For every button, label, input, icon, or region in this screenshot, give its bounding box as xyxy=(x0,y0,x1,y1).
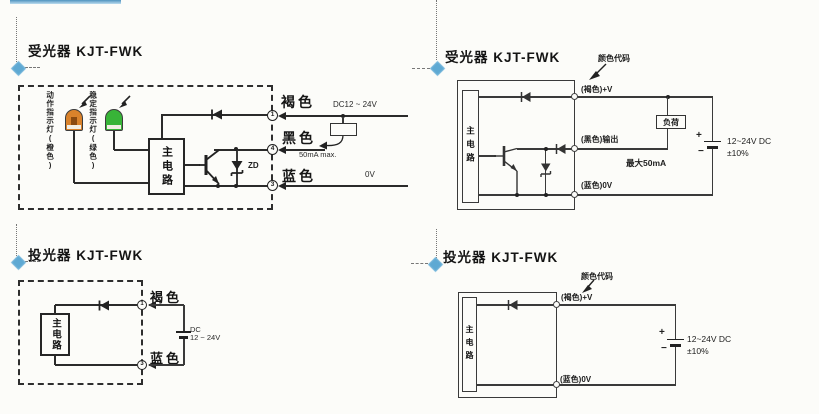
color-code-arrow-icon xyxy=(585,62,609,82)
load-box xyxy=(330,123,357,136)
main-circuit-box: 主电路 xyxy=(462,297,477,392)
pointer-arrow-icon xyxy=(77,95,92,110)
main-circuit-label: 主电路 xyxy=(159,146,175,188)
main-circuit-label: 主电路 xyxy=(48,318,62,351)
wire xyxy=(73,131,75,183)
panel4-title: 投光器 KJT-FWK xyxy=(443,246,558,266)
junction-dot xyxy=(234,184,238,188)
max-current-label: 最大50mA xyxy=(626,157,666,169)
wire xyxy=(55,364,137,366)
junction-dot xyxy=(515,193,519,197)
wire xyxy=(712,97,713,141)
supply-voltage-label: 12~24V DC xyxy=(687,334,731,344)
wire xyxy=(479,96,713,97)
brown-plus-v-label: (褐色)+V xyxy=(581,84,612,95)
battery-plus-sign: + xyxy=(696,130,702,141)
zener-diode-icon xyxy=(539,162,553,178)
operation-indicator-lamp-orange xyxy=(65,109,83,131)
main-circuit-box: 主电路 xyxy=(462,90,479,203)
lamp-base xyxy=(67,125,81,129)
zener-diode-icon xyxy=(229,159,245,177)
registration-dashes xyxy=(25,67,40,68)
panel1-operation-lamp-label: 动作指示灯(橙色) xyxy=(45,91,54,187)
wire xyxy=(667,129,668,149)
panel3-sensor-outline xyxy=(18,280,143,385)
wire xyxy=(149,304,184,306)
junction-dot xyxy=(544,193,548,197)
registration-dotted-line xyxy=(436,229,437,258)
wire xyxy=(74,182,148,184)
wire xyxy=(185,185,268,187)
wire xyxy=(113,131,115,150)
battery-long-plate xyxy=(667,339,684,341)
registration-dotted-line xyxy=(436,0,437,60)
registration-diamond-icon xyxy=(11,255,27,271)
terminal-open xyxy=(571,191,578,198)
registration-dotted-line xyxy=(16,17,17,62)
wire xyxy=(675,305,676,339)
main-circuit-label: 主电路 xyxy=(465,126,477,167)
supply-voltage-label: 12 ~ 24V xyxy=(190,333,220,342)
wire xyxy=(667,97,668,115)
registration-dashes xyxy=(411,263,428,264)
diode-icon xyxy=(552,143,568,155)
junction-dot xyxy=(234,147,238,151)
transistor-icon xyxy=(199,146,223,188)
brown-plus-v-label: (褐色)+V xyxy=(561,292,592,303)
supply-voltage-label: 12~24V DC xyxy=(727,136,771,146)
registration-dotted-line xyxy=(16,224,17,256)
black-wire-label: 黑色 xyxy=(282,128,316,148)
brown-wire-label: 褐色 xyxy=(281,92,315,112)
supply-tolerance-label: ±10% xyxy=(727,148,749,158)
current-rating-label: 50mA max. xyxy=(299,150,337,159)
terminal-1: 1 xyxy=(267,110,278,121)
junction-dot xyxy=(216,184,220,188)
lamp-base xyxy=(107,125,121,129)
panel3-title: 投光器 KJT-FWK xyxy=(28,244,143,264)
supply-tolerance-label: ±10% xyxy=(687,346,709,356)
battery-minus-sign: − xyxy=(661,343,667,354)
stability-indicator-lamp-green xyxy=(105,109,123,131)
black-output-label: (黑色)输出 xyxy=(581,134,618,145)
registration-diamond-icon xyxy=(428,257,444,273)
blue-zero-v-label: (蓝色)0V xyxy=(581,180,612,191)
zener-label: ZD xyxy=(248,161,259,170)
terminal-open xyxy=(553,301,560,308)
registration-dashes xyxy=(412,68,430,69)
diode-icon xyxy=(207,108,225,121)
junction-dot xyxy=(544,147,548,151)
transistor-icon xyxy=(494,141,520,197)
wire xyxy=(161,115,163,138)
load-label: 负荷 xyxy=(663,117,679,128)
wire xyxy=(712,149,713,195)
terminal-3: 3 xyxy=(137,360,147,370)
terminal-1: 1 xyxy=(137,300,147,310)
wire xyxy=(183,305,185,331)
load-box: 负荷 xyxy=(656,115,686,129)
wire xyxy=(675,347,676,385)
panel2-title: 受光器 KJT-FWK xyxy=(445,46,560,66)
terminal-open xyxy=(571,145,578,152)
pointer-arrow-icon xyxy=(117,95,132,110)
diode-icon xyxy=(504,299,520,311)
wire xyxy=(54,305,56,314)
datasheet-wiring-diagrams: 受光器 KJT-FWK 动作指示灯(橙色) 稳定指示灯(绿色) 主电路 xyxy=(0,0,819,414)
wire xyxy=(285,115,408,117)
main-circuit-box: 主电路 xyxy=(40,313,70,356)
battery-minus-sign: − xyxy=(698,146,704,157)
terminal-open xyxy=(553,381,560,388)
terminal-open xyxy=(571,93,578,100)
wire xyxy=(149,364,184,366)
panel1-title: 受光器 KJT-FWK xyxy=(28,40,143,60)
wire xyxy=(183,339,185,365)
main-circuit-label: 主电路 xyxy=(464,325,475,364)
page-header-accent-bar xyxy=(10,0,121,4)
battery-long-plate xyxy=(704,141,721,143)
wire xyxy=(185,164,200,166)
brown-wire-label: 褐色 xyxy=(150,287,182,306)
blue-wire-label: 蓝色 xyxy=(282,166,316,186)
terminal-4: 4 xyxy=(267,144,278,155)
supply-voltage-label: DC12 ~ 24V xyxy=(333,100,377,109)
wire xyxy=(285,185,408,187)
main-circuit-box: 主电路 xyxy=(148,138,185,195)
registration-diamond-icon xyxy=(430,61,446,77)
wire xyxy=(114,149,148,151)
registration-diamond-icon xyxy=(11,61,27,77)
terminal-3: 3 xyxy=(267,180,278,191)
battery-long-plate xyxy=(176,331,191,333)
zero-volt-label: 0V xyxy=(365,170,375,179)
blue-zero-v-label: (蓝色)0V xyxy=(560,374,591,385)
battery-plus-sign: + xyxy=(659,327,665,338)
wire xyxy=(517,148,668,149)
diode-icon xyxy=(95,299,112,312)
diode-icon xyxy=(517,91,533,103)
